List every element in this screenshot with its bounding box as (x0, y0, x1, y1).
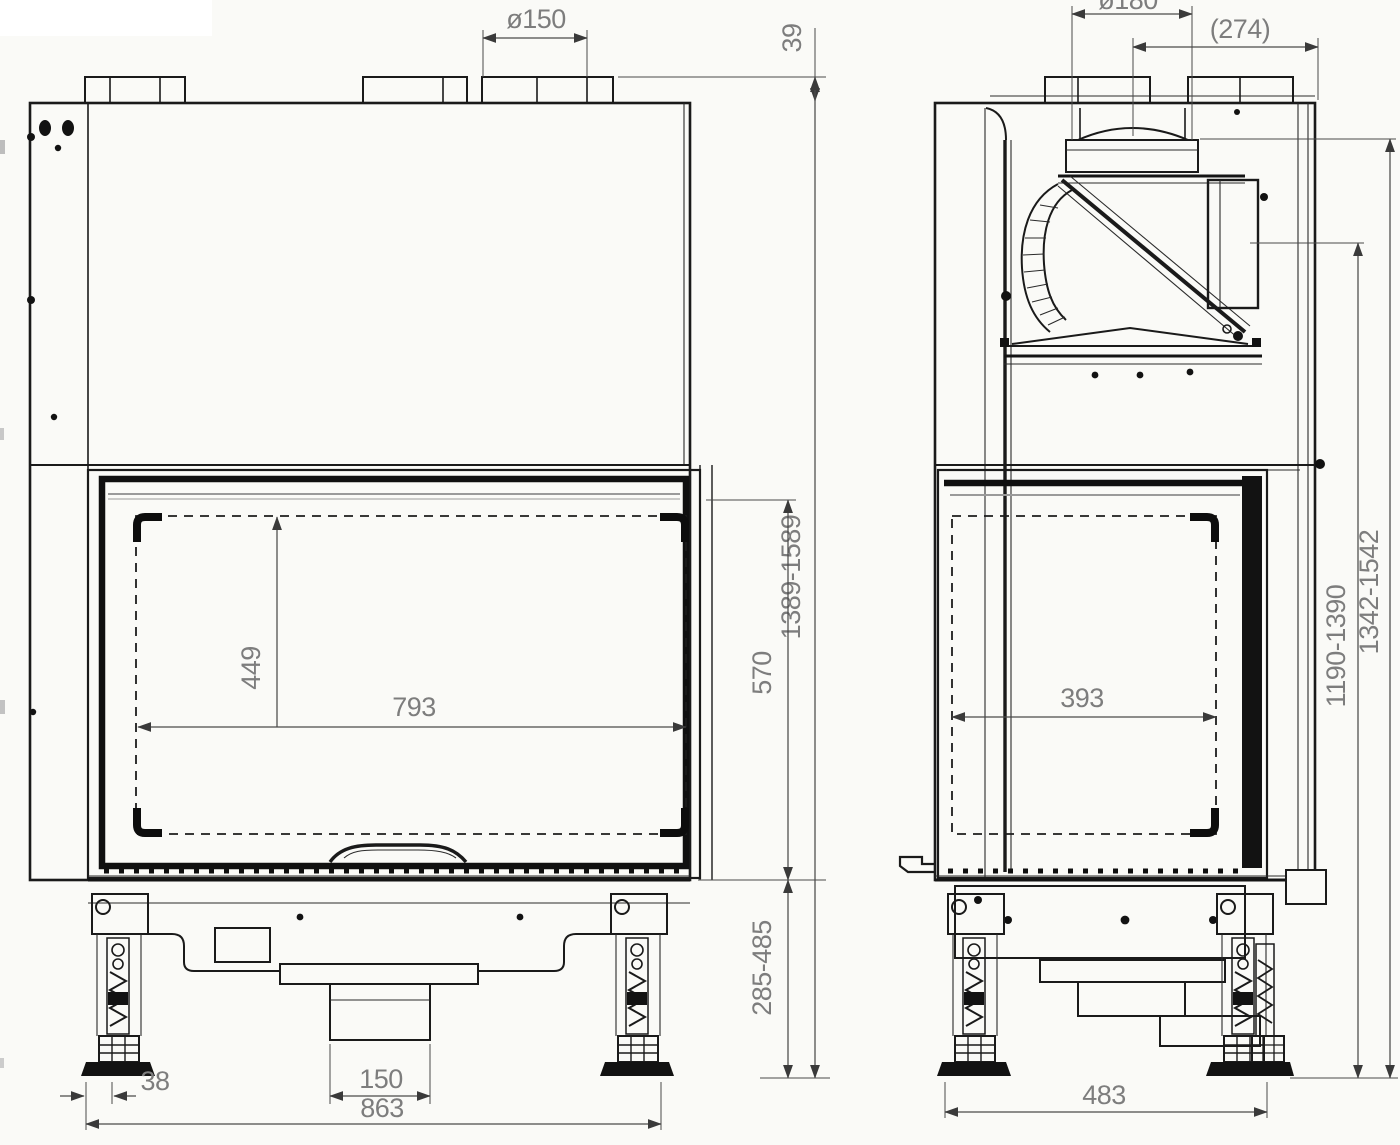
side-duct (1078, 982, 1185, 1016)
front-flue-spigot (482, 77, 613, 103)
front-flange-holes (27, 120, 74, 715)
intake-plate (280, 964, 478, 984)
dim-overall-height: 1389-1589 (776, 515, 806, 640)
side-second-foot (1244, 944, 1294, 1076)
dim-collar-offset: 39 (777, 23, 807, 52)
rear-flue-box (1208, 180, 1258, 308)
dim-side-glass-width: 393 (1060, 683, 1104, 713)
front-window (30, 465, 712, 880)
dim-intake-width: 150 (359, 1064, 403, 1094)
front-dimensions: ø150 39 1389-1589 570 285-485 449 793 38… (60, 4, 830, 1130)
drawing-sheet: ø150 39 1389-1589 570 285-485 449 793 38… (0, 0, 1400, 1145)
dim-foot-offset: 38 (140, 1066, 169, 1096)
dim-flue-to-back: (274) (1210, 14, 1271, 44)
front-view (27, 77, 712, 1076)
front-left-foot (81, 894, 155, 1076)
side-view (900, 77, 1326, 1076)
side-handle (900, 857, 935, 872)
front-glass-outline (136, 516, 686, 834)
dim-plinth-height: 285-485 (747, 920, 777, 1016)
side-top-connectors (1045, 77, 1293, 103)
dim-front-flue-diameter: ø150 (506, 4, 566, 34)
front-base (81, 876, 690, 1076)
dim-glass-width: 793 (392, 692, 436, 722)
front-door-frame (102, 479, 686, 866)
damper-mechanism (1000, 108, 1268, 378)
front-top-connectors (85, 77, 613, 103)
white-label-patch (0, 0, 212, 36)
side-glass-outline (952, 516, 1216, 834)
front-body-outline (30, 103, 690, 880)
side-window (900, 459, 1325, 878)
dim-height-to-window: 1190-1390 (1321, 585, 1351, 708)
side-glass-edge (1242, 476, 1262, 868)
lift-arm (1062, 180, 1245, 332)
side-plinth (955, 886, 1245, 958)
glass-corner-marks (137, 517, 685, 833)
rear-bracket (1286, 870, 1326, 904)
dim-foot-span-side: 483 (1082, 1080, 1126, 1110)
dim-height-to-top: 1342-1542 (1354, 530, 1384, 655)
scan-artifacts (0, 0, 212, 1068)
technical-drawing: ø150 39 1389-1589 570 285-485 449 793 38… (0, 0, 1400, 1145)
air-intake-duct (330, 984, 430, 1040)
dim-door-height: 570 (747, 651, 777, 695)
dim-foot-span-front: 863 (360, 1093, 404, 1123)
front-right-foot (600, 894, 674, 1076)
dim-glass-height: 449 (236, 646, 266, 690)
dim-side-flue-diameter: ø180 (1098, 0, 1158, 15)
side-base (935, 870, 1326, 1076)
